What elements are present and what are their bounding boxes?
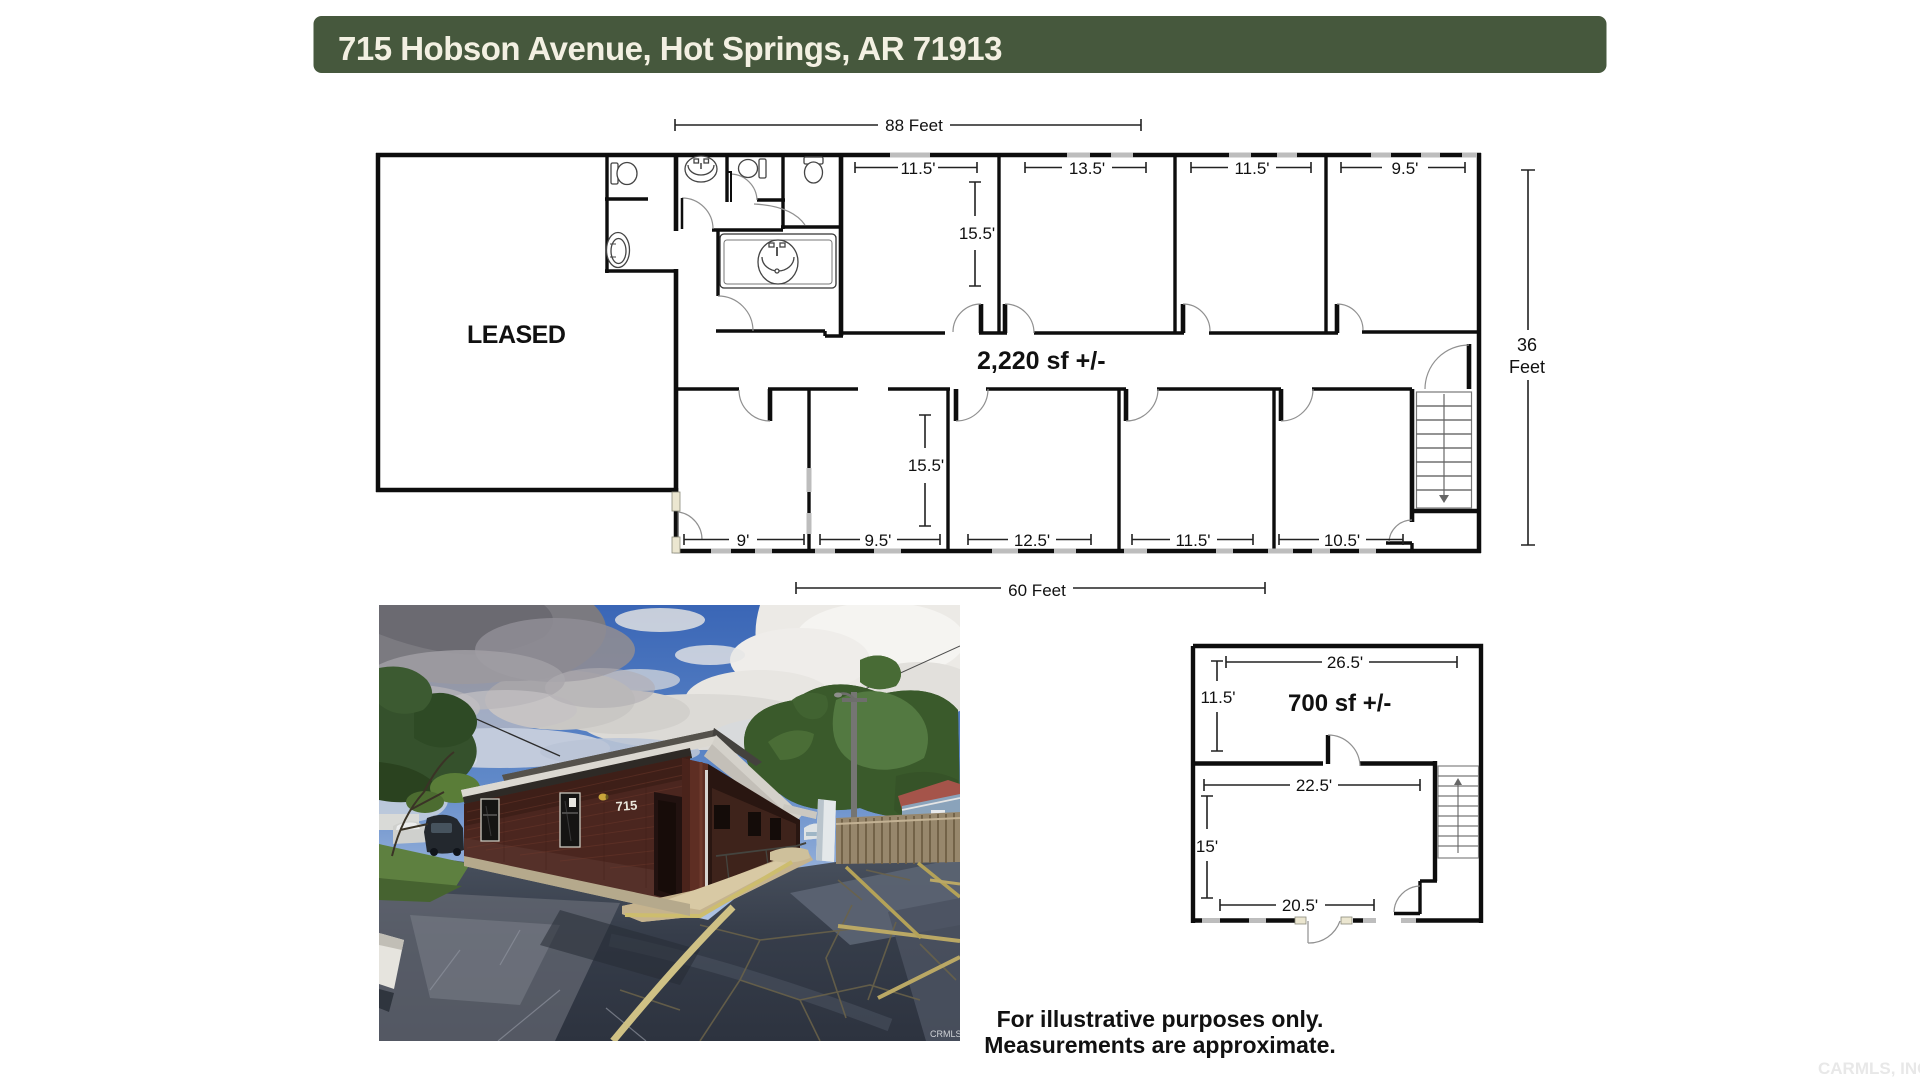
svg-text:15': 15'	[1196, 837, 1218, 856]
svg-text:9.5': 9.5'	[1392, 159, 1419, 178]
svg-text:9': 9'	[737, 531, 750, 550]
svg-text:60 Feet: 60 Feet	[1008, 581, 1066, 600]
svg-text:LEASED: LEASED	[467, 321, 565, 349]
svg-text:15.5': 15.5'	[959, 224, 995, 243]
svg-text:26.5': 26.5'	[1327, 653, 1363, 672]
svg-text:22.5': 22.5'	[1296, 776, 1332, 795]
svg-text:For illustrative purposes only: For illustrative purposes only.	[997, 1006, 1324, 1032]
svg-text:11.5': 11.5'	[1234, 159, 1269, 178]
svg-text:CRMLS: CRMLS	[930, 1029, 962, 1039]
svg-text:715 Hobson Avenue, Hot Springs: 715 Hobson Avenue, Hot Springs, AR 71913	[338, 30, 1002, 67]
svg-text:2,220 sf +/-: 2,220 sf +/-	[977, 347, 1106, 375]
svg-text:20.5': 20.5'	[1282, 896, 1318, 915]
svg-text:10.5': 10.5'	[1324, 531, 1360, 550]
svg-text:36: 36	[1517, 335, 1537, 355]
svg-text:700 sf +/-: 700 sf +/-	[1288, 690, 1391, 717]
svg-text:13.5': 13.5'	[1069, 159, 1105, 178]
svg-text:15.5': 15.5'	[908, 456, 944, 475]
svg-text:88 Feet: 88 Feet	[885, 116, 943, 135]
svg-text:Measurements are approximate.: Measurements are approximate.	[984, 1032, 1336, 1058]
svg-text:12.5': 12.5'	[1014, 531, 1050, 550]
svg-text:715: 715	[615, 798, 638, 814]
svg-text:Feet: Feet	[1509, 357, 1545, 377]
svg-text:11.5': 11.5'	[1175, 531, 1210, 550]
svg-text:11.5': 11.5'	[900, 159, 935, 178]
svg-text:9.5': 9.5'	[865, 531, 892, 550]
svg-text:CARMLS, INC: CARMLS, INC	[1818, 1059, 1920, 1078]
svg-text:11.5': 11.5'	[1200, 688, 1235, 707]
